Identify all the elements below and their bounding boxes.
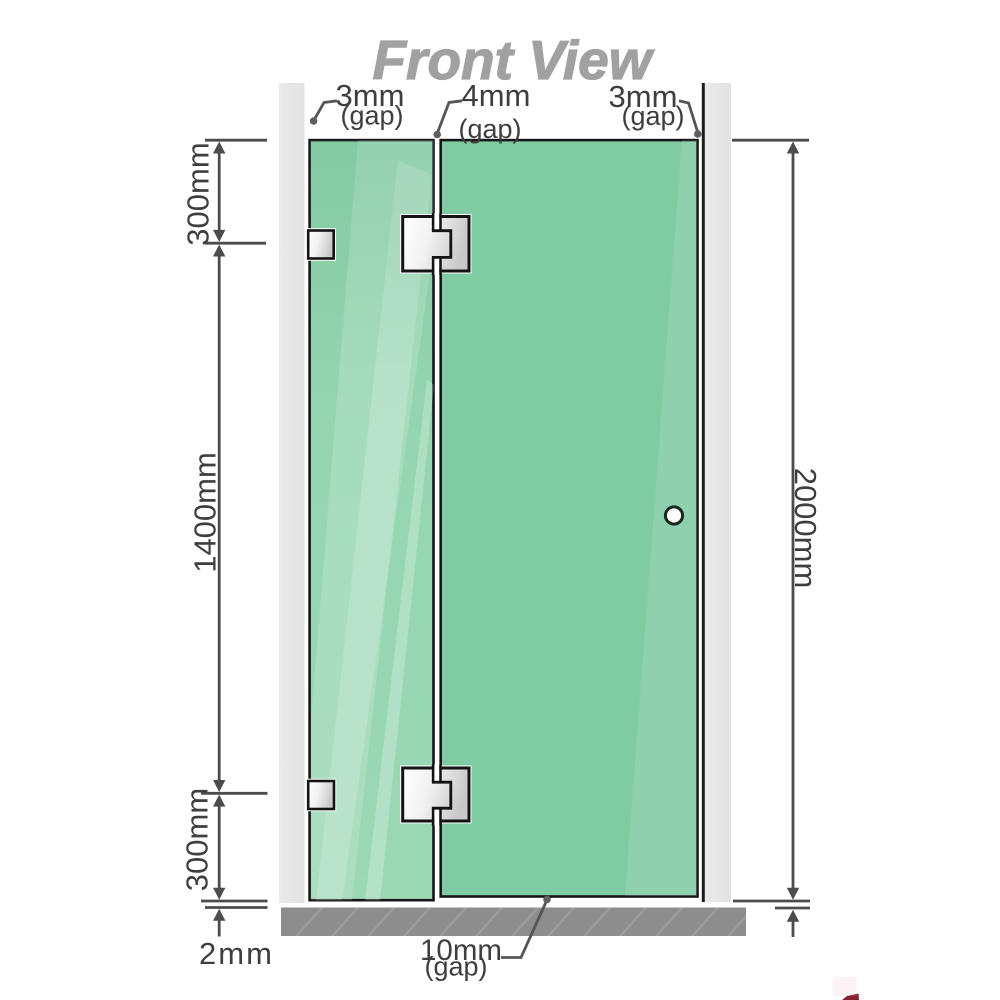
svg-text:(gap): (gap): [458, 114, 521, 144]
svg-text:4mm: 4mm: [462, 78, 531, 113]
svg-text:1400mm: 1400mm: [188, 452, 223, 573]
svg-text:300mm: 300mm: [180, 142, 215, 245]
svg-text:2mm: 2mm: [199, 936, 274, 971]
svg-text:2000mm: 2000mm: [788, 468, 823, 589]
svg-text:(gap): (gap): [424, 952, 487, 982]
svg-text:(gap): (gap): [621, 101, 684, 131]
svg-text:(gap): (gap): [340, 101, 403, 131]
svg-text:300mm: 300mm: [180, 788, 215, 891]
